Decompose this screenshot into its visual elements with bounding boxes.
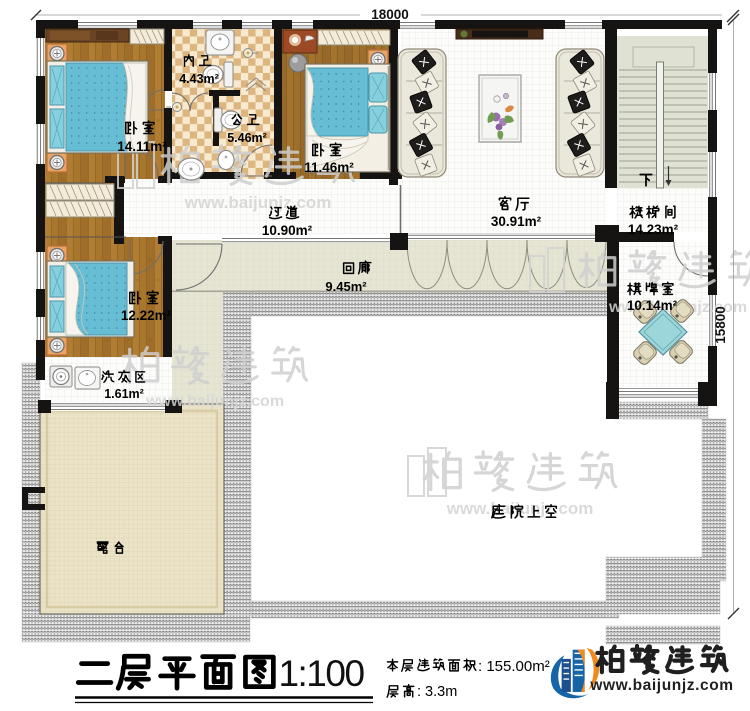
svg-text:30.91m²: 30.91m² [491, 214, 542, 229]
svg-text:: 3.3m: : 3.3m [417, 684, 457, 700]
svg-text:12.22m²: 12.22m² [121, 308, 172, 323]
svg-text:1:100: 1:100 [278, 653, 364, 694]
svg-text:www.baijunjz.com: www.baijunjz.com [589, 677, 733, 694]
svg-text:15800: 15800 [713, 306, 728, 344]
svg-text:5.46m²: 5.46m² [227, 131, 267, 145]
svg-text:14.11m²: 14.11m² [117, 139, 167, 154]
svg-text:11.46m²: 11.46m² [304, 160, 354, 175]
svg-text:9.45m²: 9.45m² [325, 279, 367, 294]
svg-text:www.baijunjz.com: www.baijunjz.com [145, 393, 284, 410]
svg-text:: 155.00m²: : 155.00m² [478, 658, 550, 675]
svg-text:10.14m²: 10.14m² [627, 298, 678, 313]
svg-text:10.90m²: 10.90m² [262, 223, 313, 238]
svg-text:14.23m²: 14.23m² [628, 222, 679, 237]
svg-text:18000: 18000 [371, 7, 409, 22]
svg-text:4.43m²: 4.43m² [179, 72, 219, 86]
svg-text:1.61m²: 1.61m² [104, 387, 144, 401]
svg-text:www.baijunjz.com: www.baijunjz.com [184, 193, 332, 212]
